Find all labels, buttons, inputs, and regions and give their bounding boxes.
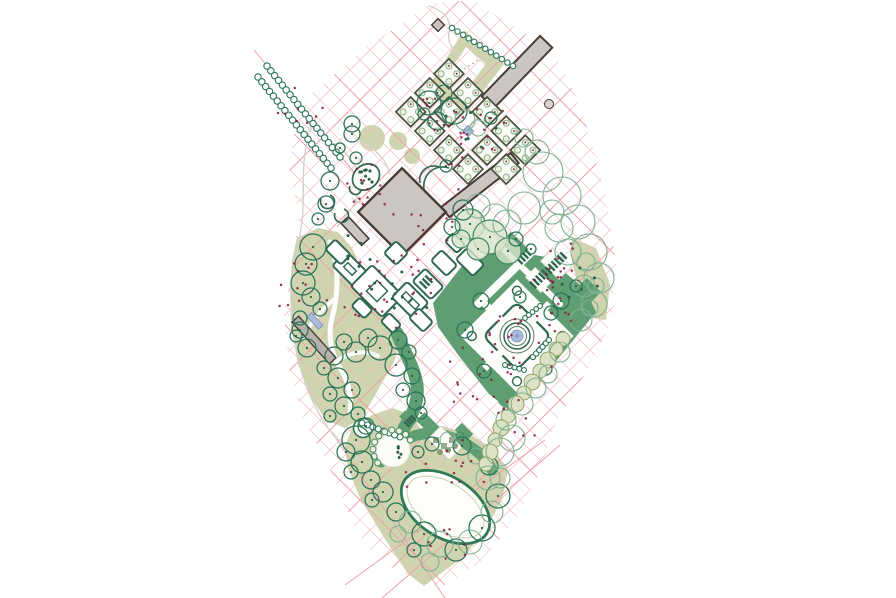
plant-marker-dot [554,330,557,333]
plant-marker-dot [383,298,386,301]
tree-trunk-dot [299,317,301,319]
tree-trunk-dot [411,375,413,377]
topiary-marker-dot [358,265,361,268]
topiary-marker-dot [469,111,472,114]
plant-marker-dot [557,276,560,279]
plant-marker-dot [547,277,550,280]
plant-marker-dot [443,529,446,532]
plant-marker-dot [545,273,548,276]
topiary-marker-dot [445,115,448,118]
plant-marker-dot [472,395,475,398]
plant-marker-dot [444,557,447,560]
plant-marker-dot [550,365,553,368]
plant-marker-dot [429,545,432,548]
lawn-clump [389,132,407,150]
plant-marker-dot [514,318,517,321]
plant-marker-dot [448,528,451,531]
avenue-tree [328,165,334,171]
plant-marker-dot [549,280,552,283]
plant-marker-dot [506,371,509,374]
plant-marker-dot [470,460,473,463]
topiary-marker-dot [568,296,571,299]
plant-marker-dot [400,254,403,256]
scallop-hedge-ball [376,433,382,439]
plant-marker-dot [548,324,551,327]
tree-trunk-dot [350,471,352,473]
avenue-tree [460,32,465,37]
topiary-marker-dot [425,306,428,309]
tree-trunk-dot [323,367,325,369]
plant-marker-dot [455,111,458,114]
tree-trunk-dot [423,533,425,535]
tree-trunk-dot [443,92,445,94]
plant-marker-dot [379,282,382,285]
tree-trunk-dot [420,412,422,414]
tree-trunk-dot [382,491,384,493]
tree-trunk-dot [357,413,359,415]
plant-marker-dot [356,168,359,171]
plant-marker-dot [549,250,552,253]
plant-marker-dot [315,115,318,118]
plant-marker-dot [460,465,463,468]
plant-marker-dot [424,102,427,105]
plant-marker-dot [443,124,446,127]
tree-trunk-dot [319,308,321,310]
plant-marker-dot [570,320,573,323]
plant-marker-dot [570,242,573,245]
plant-marker-dot [357,315,360,318]
plant-marker-dot [492,395,495,398]
plant-marker-dot [298,299,301,302]
plant-marker-dot [536,315,539,318]
plant-marker-dot [559,297,562,300]
plant-marker-dot [482,358,485,361]
avenue-tree [522,368,527,373]
plant-marker-dot [479,114,482,117]
topiary-marker-dot [364,175,367,178]
plant-marker-dot [519,306,522,309]
tree-trunk-dot [397,339,399,341]
plant-marker-dot [458,481,461,484]
avenue-tree [499,56,504,61]
avenue-tree [510,63,515,68]
plant-marker-dot [417,270,420,273]
plant-marker-dot [486,136,489,139]
topiary-dot [370,180,373,183]
tree-trunk-dot [462,209,464,211]
plant-marker-dot [517,399,520,402]
plant-marker-dot [564,312,567,315]
plant-marker-dot [405,471,408,474]
plant-marker-dot [476,398,479,401]
tree-trunk-dot [339,147,341,149]
plant-marker-dot [572,247,575,250]
tree-trunk-dot [489,236,491,238]
tree-trunk-dot [530,248,532,250]
plant-marker-dot [462,346,465,349]
tree-trunk-dot [355,157,357,159]
tree-trunk-dot [413,549,415,551]
plant-marker-dot [353,200,356,203]
plant-marker-dot [450,215,453,218]
plant-marker-dot [422,99,425,102]
plant-marker-dot [494,343,497,346]
topiary-marker-dot [495,127,498,130]
tree-trunk-dot [370,479,372,481]
lawn-clump [404,148,420,164]
avenue-tree [466,36,471,41]
avenue-tree [512,365,517,370]
plant-marker-dot [453,472,456,475]
plant-marker-dot [366,188,369,191]
plant-marker-dot [462,462,465,465]
topiary-marker-dot [346,257,349,260]
tree-trunk-dot [423,113,425,115]
plant-marker-dot [429,116,432,119]
tree-trunk-dot [464,329,466,331]
plant-marker-dot [497,412,500,415]
topiary-marker-dot [370,288,373,291]
plant-marker-dot [427,541,430,544]
plant-marker-dot [479,373,482,376]
topiary-marker-dot [391,297,394,300]
topiary-dot [360,181,363,184]
tree-trunk-dot [455,549,457,551]
topiary-marker-dot [391,282,394,285]
plant-marker-dot [557,257,560,260]
plant-marker-dot [392,213,395,216]
topiary-marker-dot [365,169,368,172]
plant-marker-dot [559,270,562,273]
tree-trunk-dot [477,248,479,250]
plant-marker-dot [426,98,429,101]
tree-trunk-dot [436,120,438,122]
tree-trunk-dot [295,335,297,337]
plant-marker-dot [488,334,491,337]
tree-trunk-dot [515,238,517,240]
topiary-marker-dot [561,283,564,286]
plant-marker-dot [450,481,453,484]
plant-marker-dot [488,117,491,120]
plant-marker-dot [551,312,554,315]
site-plan-drawing [0,0,896,598]
plant-marker-dot [280,284,283,287]
tree-trunk-dot [329,393,331,395]
plant-marker-dot [425,463,428,466]
plant-marker-dot [417,225,420,228]
topiary-marker-dot [450,123,453,126]
plant-marker-dot [533,279,536,282]
topiary-marker-dot [399,453,402,456]
plant-marker-dot [296,287,299,290]
plant-marker-dot [490,379,493,382]
avenue-tree [494,53,499,58]
plant-marker-dot [458,165,461,168]
plant-marker-dot [445,202,448,205]
plant-marker-dot [359,261,362,264]
tree-trunk-dot [445,165,447,167]
plant-marker-dot [491,351,494,354]
topiary-marker-dot [346,255,349,258]
tree-trunk-dot [343,341,345,343]
plant-marker-dot [393,260,396,263]
plant-marker-dot [423,243,426,246]
plant-marker-dot [459,132,462,135]
tree-trunk-dot [497,495,499,497]
scallop-hedge-ball [382,429,388,435]
topiary-marker-dot [393,306,396,309]
tree-canopy [479,457,493,471]
topiary-dot [368,169,371,172]
tree-trunk-dot [469,223,471,225]
plant-marker-dot [483,129,486,132]
scallop-hedge-ball [389,427,395,433]
tree-trunk-dot [379,347,381,349]
plant-marker-dot [491,148,494,151]
plant-marker-dot [296,120,299,123]
plant-marker-dot [508,364,511,367]
plant-marker-dot [374,308,377,311]
plant-marker-dot [501,110,504,113]
plant-marker-dot [351,285,354,288]
plant-marker-dot [381,310,384,313]
plant-marker-dot [360,292,363,295]
plant-marker-dot [284,112,287,115]
tree-trunk-dot [343,405,345,407]
tree-trunk-dot [355,351,357,353]
tree-trunk-dot [451,226,453,228]
topiary-marker-dot [400,271,403,274]
tree-trunk-dot [480,300,482,302]
tree-trunk-dot [367,337,369,339]
plant-marker-dot [360,179,363,182]
scallop-hedge-ball [403,431,409,437]
avenue-tree [546,337,551,342]
tree-trunk-dot [361,461,363,463]
plant-marker-dot [453,401,456,404]
scallop-hedge-ball [370,446,376,452]
tree-trunk-dot [351,389,353,391]
plant-marker-dot [326,299,329,302]
plant-marker-dot [343,306,346,309]
scallop-hedge-ball [375,460,381,466]
tree-trunk-dot [329,415,331,417]
plant-marker-dot [433,128,436,131]
plant-marker-dot [518,362,521,365]
scallop-hedge-ball [396,428,402,434]
tree-trunk-dot [408,351,410,353]
tree-trunk-dot [560,300,562,302]
plant-marker-dot [455,459,458,462]
plant-marker-dot [354,314,357,317]
plant-marker-dot [346,182,349,185]
topiary-marker-dot [465,106,468,109]
tree-trunk-dot [507,250,509,252]
plant-marker-dot [462,116,465,119]
plant-marker-dot [506,401,509,404]
plant-marker-dot [449,360,452,363]
topiary-marker-dot [360,170,363,173]
plant-marker-dot [502,408,505,411]
topiary-marker-dot [369,258,372,261]
plant-marker-dot [304,283,307,286]
plant-marker-dot [457,188,460,191]
tree-trunk-dot [483,370,485,372]
plant-marker-dot [563,267,566,270]
plant-marker-dot [296,108,299,111]
tree-trunk-dot [428,102,430,104]
plant-marker-dot [363,179,366,182]
tree-trunk-dot [302,282,304,284]
plant-marker-dot [277,112,280,115]
tree-trunk-dot [365,425,367,427]
plant-marker-dot [460,143,463,146]
plant-marker-dot [287,304,290,307]
plant-marker-dot [379,184,382,187]
plant-marker-dot [415,312,418,315]
tree-trunk-dot [333,355,335,357]
tree-trunk-dot [395,511,397,513]
plant-marker-dot [406,485,409,488]
tree-trunk-dot [325,203,327,205]
tree-trunk-dot [329,180,331,182]
plant-marker-dot [430,292,433,295]
plant-marker-dot [278,305,281,308]
plant-marker-dot [519,320,522,323]
plant-marker-dot [560,276,563,279]
avenue-tree [477,43,482,48]
tree-trunk-dot [355,439,357,441]
plant-marker-dot [362,203,365,206]
plant-marker-dot [457,383,460,386]
tree-trunk-dot [402,389,404,391]
topiary-marker-dot [398,456,401,459]
plant-marker-dot [548,267,551,270]
tree-trunk-dot [306,347,308,349]
plant-marker-dot [466,133,469,136]
plant-marker-dot [464,554,467,557]
plant-marker-dot [567,313,570,316]
plant-marker-dot [503,121,506,124]
plant-marker-dot [448,124,451,127]
plant-marker-dot [459,392,462,395]
tree-trunk-dot [371,499,373,501]
plant-marker-dot [422,229,425,232]
tree-trunk-dot [310,296,312,298]
plant-marker-dot [497,320,500,323]
plant-marker-dot [552,286,555,289]
tree-trunk-dot [417,451,419,453]
plant-marker-dot [510,373,513,376]
plant-marker-dot [368,285,371,288]
topiary-marker-dot [394,292,397,295]
plant-marker-dot [522,434,525,437]
plant-marker-dot [476,108,479,111]
plant-marker-dot [456,381,459,384]
plant-marker-dot [546,289,549,292]
topiary-marker-dot [396,451,399,454]
plant-marker-dot [386,301,389,304]
plant-marker-dot [488,332,491,335]
plant-marker-dot [514,431,517,434]
tree-trunk-dot [461,445,463,447]
avenue-tree [488,49,493,54]
plant-marker-dot [571,269,574,272]
plant-marker-dot [366,196,369,199]
plant-marker-dot [378,193,381,196]
avenue-tree [483,46,488,51]
plant-marker-dot [321,107,324,110]
plant-marker-dot [525,417,528,420]
topiary-marker-dot [593,276,596,279]
plant-marker-dot [445,217,448,220]
tree-trunk-dot [460,238,462,240]
plant-marker-dot [434,98,437,101]
plant-marker-dot [460,136,463,139]
lawn-clump [359,125,385,151]
plot-circle [437,449,443,455]
plant-marker-dot [395,326,398,329]
plant-marker-dot [297,270,300,273]
plant-marker-dot [446,239,449,242]
plant-marker-dot [507,336,510,339]
topiary-marker-dot [359,242,362,245]
plant-marker-dot [378,270,381,273]
topiary-marker-dot [480,146,483,149]
avenue-tree [517,366,522,371]
plant-marker-dot [410,266,413,269]
scallop-hedge-ball [407,437,413,443]
tree-trunk-dot [312,246,314,248]
topiary-marker-dot [464,138,467,141]
plant-marker-dot [461,156,464,159]
plant-marker-dot [420,214,423,217]
plant-marker-dot [370,164,373,167]
avenue-tree [503,363,508,368]
plant-marker-dot [499,315,502,318]
tree-trunk-dot [317,218,319,220]
plant-marker-dot [463,543,466,546]
tree-trunk-dot [305,263,307,265]
plant-marker-dot [411,273,414,276]
topiary-marker-dot [578,266,581,269]
plant-marker-dot [557,303,560,306]
tree-trunk-dot [395,364,397,366]
avenue-tree [449,25,454,30]
topiary-marker-dot [373,281,376,284]
tree-trunk-dot [519,296,521,298]
plant-marker-dot [410,213,413,216]
topiary-marker-dot [368,178,371,181]
tree-trunk-dot [415,400,417,402]
topiary-marker-dot [596,285,599,288]
tree-trunk-dot [351,133,353,135]
plant-marker-dot [446,533,449,536]
plant-marker-dot [416,259,419,262]
topiary-marker-dot [580,288,583,291]
plant-marker-dot [425,481,428,484]
avenue-tree [337,154,343,160]
plant-marker-dot [307,267,310,270]
landscape-masterplan-page [0,0,896,598]
avenue-tree [455,29,460,34]
plant-marker-dot [383,203,386,206]
plant-marker-dot [293,262,296,265]
plant-marker-dot [411,293,414,296]
pavilion-circle [545,100,554,109]
avenue-tree [471,39,476,44]
tree-trunk-dot [431,443,433,445]
